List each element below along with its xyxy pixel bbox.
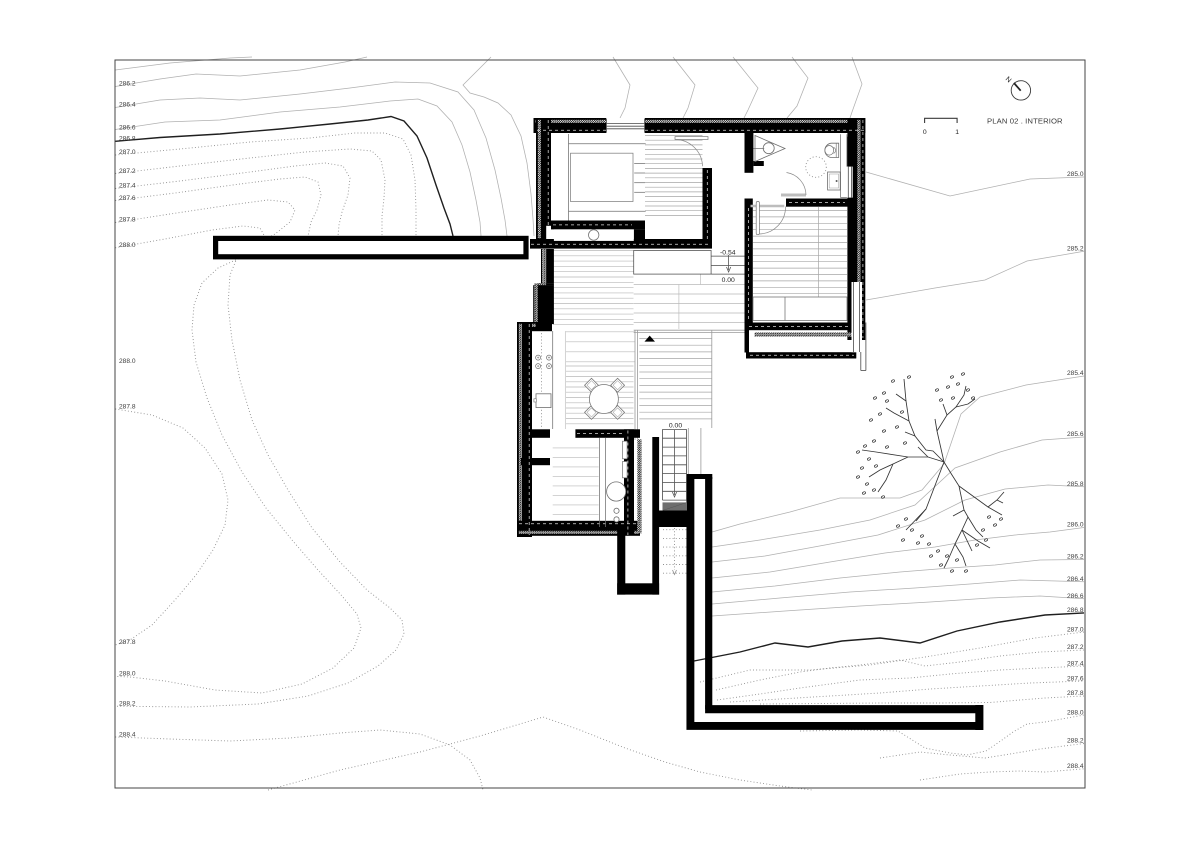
- svg-text:287.8: 287.8: [119, 403, 136, 410]
- svg-text:288.4: 288.4: [119, 731, 136, 738]
- svg-text:286.0: 286.0: [1067, 522, 1084, 529]
- svg-text:PLAN 02 . INTERIOR: PLAN 02 . INTERIOR: [987, 117, 1063, 126]
- svg-text:287.0: 287.0: [119, 149, 136, 156]
- svg-text:285.4: 285.4: [1067, 370, 1084, 377]
- svg-text:285.0: 285.0: [1067, 171, 1084, 178]
- svg-text:287.2: 287.2: [1067, 644, 1084, 651]
- svg-text:1: 1: [955, 129, 959, 136]
- svg-text:285.6: 285.6: [1067, 431, 1084, 438]
- svg-text:287.8: 287.8: [119, 217, 136, 224]
- svg-text:288.0: 288.0: [119, 242, 136, 249]
- svg-text:286.4: 286.4: [119, 102, 136, 109]
- svg-text:287.8: 287.8: [119, 639, 136, 646]
- svg-text:286.6: 286.6: [1067, 593, 1084, 600]
- svg-text:288.4: 288.4: [1067, 763, 1084, 770]
- svg-text:0.00: 0.00: [722, 277, 735, 284]
- svg-text:288.2: 288.2: [1067, 738, 1084, 745]
- svg-text:286.8: 286.8: [1067, 607, 1084, 614]
- svg-text:286.8: 286.8: [119, 136, 136, 143]
- svg-text:287.0: 287.0: [1067, 626, 1084, 633]
- svg-text:0.00: 0.00: [669, 422, 682, 429]
- svg-text:286.2: 286.2: [119, 81, 136, 88]
- svg-text:287.8: 287.8: [1067, 690, 1084, 697]
- svg-text:0: 0: [923, 129, 927, 136]
- svg-text:288.0: 288.0: [119, 358, 136, 365]
- svg-text:287.4: 287.4: [1067, 661, 1084, 668]
- svg-text:286.4: 286.4: [1067, 576, 1084, 583]
- svg-text:288.0: 288.0: [119, 671, 136, 678]
- svg-text:286.2: 286.2: [1067, 554, 1084, 561]
- svg-text:285.8: 285.8: [1067, 481, 1084, 488]
- svg-text:287.4: 287.4: [119, 183, 136, 190]
- svg-text:-0.54: -0.54: [720, 250, 736, 257]
- svg-text:288.2: 288.2: [119, 700, 136, 707]
- svg-text:285.2: 285.2: [1067, 246, 1084, 253]
- svg-text:286.6: 286.6: [119, 124, 136, 131]
- svg-text:287.6: 287.6: [119, 195, 136, 202]
- svg-text:287.6: 287.6: [1067, 675, 1084, 682]
- svg-text:287.2: 287.2: [119, 168, 136, 175]
- svg-text:288.0: 288.0: [1067, 710, 1084, 717]
